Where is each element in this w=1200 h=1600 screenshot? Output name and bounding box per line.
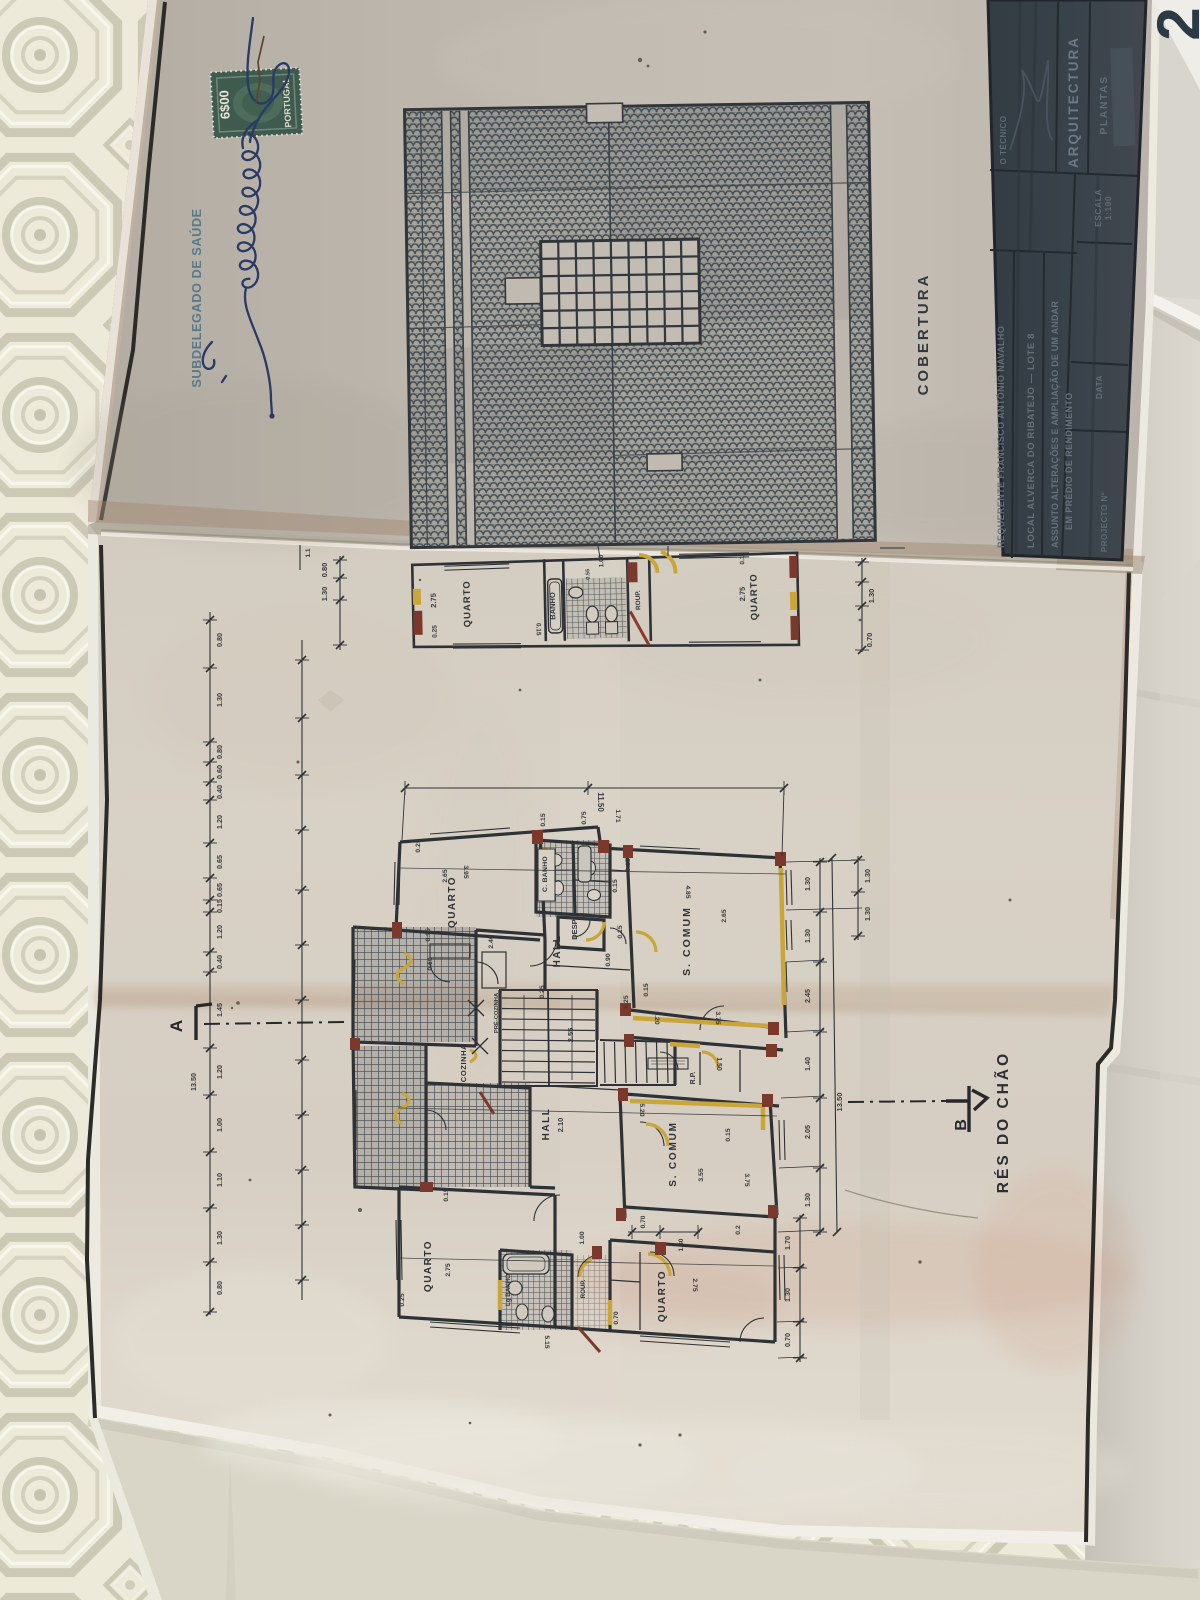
svg-text:0.2: 0.2 [735,1225,742,1235]
svg-text:0.70: 0.70 [613,1311,620,1324]
svg-text:2.75: 2.75 [738,587,747,602]
svg-text:1.45: 1.45 [215,1003,224,1017]
svg-text:1:100: 1:100 [1103,196,1113,220]
svg-text:1.30: 1.30 [678,1238,685,1251]
svg-text:DATA: DATA [1094,375,1104,399]
svg-text:QUARTO: QUARTO [447,876,458,928]
svg-text:5.15: 5.15 [543,1335,550,1348]
svg-text:13.50: 13.50 [835,1092,844,1111]
svg-text:0.15: 0.15 [612,879,619,892]
svg-text:PLANTAS: PLANTAS [1098,75,1110,134]
svg-text:4.85: 4.85 [684,885,691,898]
svg-text:LOCAL ALVERCA DO RIBATEJO —: LOCAL ALVERCA DO RIBATEJO — LOTE 8 [1026,333,1037,548]
svg-text:1.30: 1.30 [215,1231,224,1245]
svg-text:2: 2 [1145,7,1200,40]
svg-text:0.70: 0.70 [865,633,874,648]
svg-text:0.25: 0.25 [415,839,422,852]
svg-text:3.75: 3.75 [714,1011,721,1024]
svg-text:S. COMUM: S. COMUM [681,906,693,976]
svg-text:B: B [953,1119,970,1131]
svg-text:1.30: 1.30 [803,1193,812,1207]
svg-text:0.15: 0.15 [643,983,650,996]
svg-text:QUARTO: QUARTO [657,1270,668,1322]
svg-text:0.75: 0.75 [581,811,588,824]
svg-text:1.30: 1.30 [863,869,872,883]
svg-text:0.1: 0.1 [739,555,746,565]
svg-text:R.P.: R.P. [690,1072,697,1085]
svg-text:C. BANHO: C. BANHO [542,856,549,892]
svg-text:0.70: 0.70 [783,1333,792,1347]
svg-text:2.10: 2.10 [556,1118,565,1133]
svg-text:0.70: 0.70 [640,1215,647,1228]
svg-text:0.60: 0.60 [427,957,434,970]
svg-text:1.70: 1.70 [783,1236,792,1250]
svg-text:0.15: 0.15 [443,1188,450,1201]
svg-text:0.65: 0.65 [215,883,224,897]
svg-text:0.40: 0.40 [215,955,224,969]
svg-text:2.75: 2.75 [429,593,438,608]
svg-text:0.80: 0.80 [215,745,224,759]
svg-text:11.50: 11.50 [596,792,605,812]
svg-text:0.55: 0.55 [585,569,591,580]
svg-text:1.30: 1.30 [803,877,812,891]
svg-text:PROJECTO Nº: PROJECTO Nº [1100,492,1109,552]
svg-text:3.55: 3.55 [698,1168,705,1181]
svg-text:0.15: 0.15 [534,623,541,636]
svg-text:0.40: 0.40 [215,785,224,799]
svg-text:ROUP.: ROUP. [635,590,642,610]
svg-text:0.90: 0.90 [605,953,612,966]
svg-text:0.65: 0.65 [215,855,224,869]
svg-text:RÉS DO CHÃO: RÉS DO CHÃO [994,1051,1012,1193]
svg-text:QUARTO: QUARTO [423,1240,434,1292]
svg-text:HALL: HALL [552,935,563,968]
svg-text:1.00: 1.00 [579,1231,586,1244]
svg-text:6$00: 6$00 [216,90,232,120]
svg-text:0.15: 0.15 [725,1128,732,1141]
svg-text:COZINHA: COZINHA [459,1044,468,1082]
svg-text:DESP.: DESP. [570,918,579,940]
svg-text:QUARTO: QUARTO [748,573,760,620]
svg-text:0.15: 0.15 [625,858,632,871]
svg-text:0.25: 0.25 [623,995,630,1008]
svg-text:1.00: 1.00 [598,554,605,567]
svg-text:1.30: 1.30 [863,907,872,921]
svg-text:1.40: 1.40 [803,1057,812,1071]
svg-text:3.95: 3.95 [462,865,469,878]
svg-text:1.30: 1.30 [803,929,812,943]
svg-text:0.25: 0.25 [431,625,438,638]
svg-text:1.30: 1.30 [783,1288,792,1302]
svg-text:1.20: 1.20 [215,1065,224,1079]
svg-text:1.20: 1.20 [215,815,224,829]
svg-text:ARQUITECTURA: ARQUITECTURA [1066,36,1081,168]
svg-text:0.80: 0.80 [320,563,329,578]
svg-text:2.55: 2.55 [566,1028,575,1043]
svg-text:1.30: 1.30 [320,587,329,602]
svg-text:0.60: 0.60 [215,765,224,779]
svg-text:ESCALA: ESCALA [1093,189,1103,227]
svg-text:0.80: 0.80 [215,1281,224,1295]
svg-text:2.75: 2.75 [691,1278,698,1291]
svg-text:EM PRÉDIO DE RENDIMENTO: EM PRÉDIO DE RENDIMENTO [1064,392,1074,530]
svg-text:Lg BANHO: Lg BANHO [505,1274,512,1306]
svg-text:COBERTURA: COBERTURA [915,273,932,396]
svg-text:0.25: 0.25 [539,985,546,998]
svg-text:13.50: 13.50 [189,1073,198,1091]
svg-text:2.05: 2.05 [803,1125,812,1139]
svg-text:BANHO: BANHO [548,592,558,620]
svg-text:1.00: 1.00 [215,1118,224,1132]
svg-text:5.20: 5.20 [638,1103,645,1116]
svg-text:1.20: 1.20 [215,925,224,939]
svg-text:3.75: 3.75 [743,1173,750,1186]
svg-text:QUARTO: QUARTO [462,580,474,627]
svg-text:0.80: 0.80 [215,633,224,647]
svg-text:S. COMUM: S. COMUM [668,1121,679,1187]
svg-text:0.15: 0.15 [617,925,624,938]
svg-text:PRÉ-COZINHA: PRÉ-COZINHA [492,992,500,1033]
svg-text:0.25: 0.25 [399,1293,406,1306]
svg-text:5.20: 5.20 [653,1011,660,1024]
svg-text:REQUERENTE FRANCISCO ANTÓNIO: REQUERENTE FRANCISCO ANTÓNIO NAVALHO [995,326,1006,548]
svg-text:1.30: 1.30 [867,589,876,604]
svg-text:2.65: 2.65 [721,909,728,922]
svg-text:1.71: 1.71 [614,809,621,822]
svg-text:ROUP.: ROUP. [580,1279,587,1298]
svg-text:0.15: 0.15 [215,899,224,913]
svg-text:1.30: 1.30 [215,693,224,707]
svg-text:1.50: 1.50 [715,1057,722,1071]
svg-text:2.65: 2.65 [442,869,449,882]
svg-text:1.1: 1.1 [305,548,312,557]
svg-text:ASSUNTO ALTERAÇÕES E AMPLIAÇÃ: ASSUNTO ALTERAÇÕES E AMPLIAÇÃO DE UM AND… [1050,301,1060,548]
svg-text:O TÉCNICO: O TÉCNICO [999,116,1008,165]
svg-text:0.15: 0.15 [540,813,547,826]
svg-text:2.45: 2.45 [803,989,812,1003]
svg-text:0.15: 0.15 [425,928,432,941]
svg-text:1.10: 1.10 [215,1173,224,1187]
svg-text:2.40: 2.40 [488,935,495,948]
svg-text:A: A [167,1020,186,1032]
svg-text:2.75: 2.75 [445,1263,452,1276]
svg-text:HALL: HALL [541,1108,552,1141]
